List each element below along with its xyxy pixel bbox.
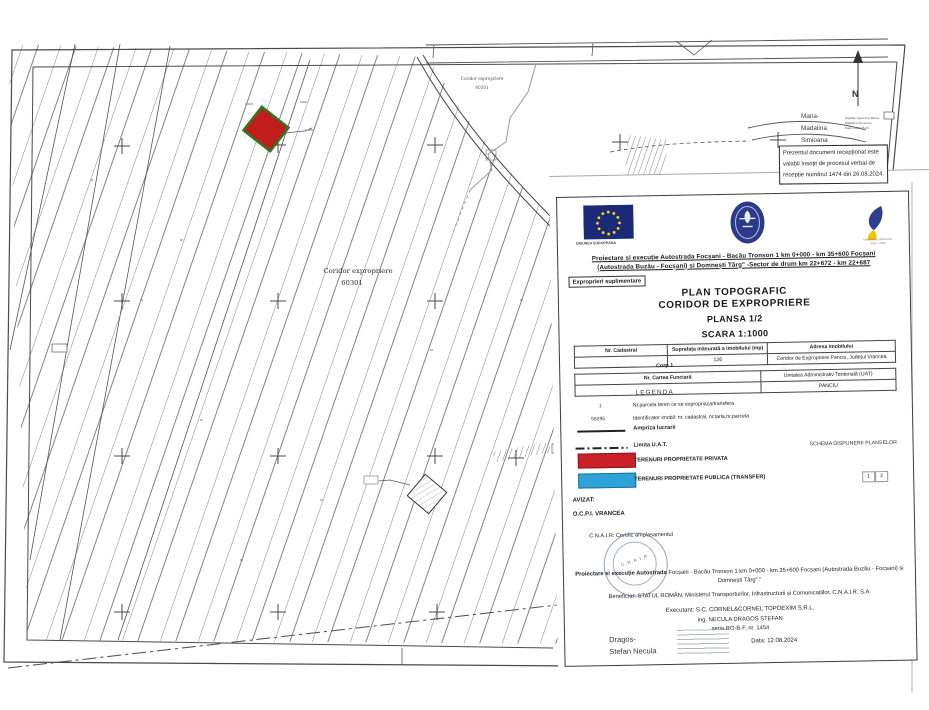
digital-signature-details: Digitally signed by Maria- Madalina Simi… <box>845 116 895 131</box>
cell-suprafata: 126 <box>668 354 768 367</box>
title-block: UNIUNEA EUROPEANA Instrumente Structural… <box>556 191 918 667</box>
corridor-label-line1: Coridor expropriere <box>323 267 392 275</box>
legend-uat-line <box>576 447 628 450</box>
legend-key-1: 1 <box>599 403 602 409</box>
legend-label-3: Ampriza lucrarii <box>633 425 675 432</box>
schema-cell-1: 1 <box>862 471 875 482</box>
approver-name-line2: Madalina <box>801 123 828 135</box>
program-caption: Instrumente Structurale 2014 - 2020 <box>854 238 902 246</box>
road-v-notch <box>676 40 712 55</box>
top-road-band <box>426 39 888 63</box>
avizat-org: O.C.P.I. VRANCEA <box>573 511 625 518</box>
cell-nr-cadastral <box>574 355 668 368</box>
cell-adresa: Coridor de Expropriere Panciu, Județul V… <box>768 351 896 364</box>
legend-public-swatch <box>578 473 636 489</box>
legend-private-swatch <box>578 453 636 469</box>
corridor-label-small-line1: Coridor expropriere <box>461 76 504 81</box>
north-label: N <box>852 89 859 99</box>
date-label: Data: 12.08.2024 <box>751 638 797 645</box>
legend-label-4: Limita U.A.T. <box>634 442 668 449</box>
carte-funciara-table: Nr. Cartea Funciară Unitatea Administrat… <box>574 368 896 397</box>
frame-tick-left <box>52 344 67 352</box>
legend-label-2: Identificator imobil: nr. cadastral, nr.… <box>633 414 749 422</box>
corridor-label-small-line2: 60301 <box>475 85 489 90</box>
legend-label-6: TERENURI PROPRIETATE PUBLICA (TRANSFER) <box>634 474 765 482</box>
legend-label-1: Nr.parcela teren ce se expropriaza/trans… <box>633 401 734 409</box>
eu-flag <box>583 205 636 244</box>
reception-line2: valabil însoțit de procesul verbal de <box>783 158 884 170</box>
scanned-plan-page: N Coridor expropriere 60301 Coridor expr… <box>0 0 929 710</box>
approver-name-line1: Maria- <box>801 111 828 123</box>
cadastral-table: Nr. Cadastral Suprafața măsurată a imobi… <box>574 340 896 369</box>
instrumente-structurale-logo <box>857 204 896 241</box>
legend-ampriza-line <box>577 430 625 433</box>
plansa-label: PLANSA 1/2 <box>559 311 910 327</box>
road-ticks <box>433 43 593 58</box>
executant-digital-signature <box>677 629 729 655</box>
schema-cell-2: 2 <box>875 471 888 482</box>
diamond-label-box <box>364 476 378 484</box>
eu-flag-caption: UNIUNEA EUROPEANA <box>576 241 616 246</box>
cnair-round-stamp: C.N.A.I.R. <box>603 532 668 597</box>
approver-signature: Maria- Madalina Simioana <box>801 111 828 147</box>
cell-uat: PANCIU <box>761 379 896 392</box>
reception-stamp-box: Prezentul document recepționat este vala… <box>779 144 888 184</box>
executant-signature: Dragos- Stefan Necula <box>609 633 657 658</box>
north-arrow: N <box>852 50 863 106</box>
corp-label: Corp 1 <box>656 363 673 369</box>
legend-title: LEGENDA <box>636 389 674 397</box>
corridor-label-line2: 60301 <box>341 279 363 287</box>
schema-cells: 1 2 <box>862 471 888 482</box>
legend-label-5: TERENURI PROPRIETATE PRIVATA <box>634 456 728 464</box>
exproprieri-box: Exproprieri suplimentare <box>568 275 645 287</box>
legend-key-2: 58295 <box>591 416 605 422</box>
gov-seal <box>725 198 770 247</box>
avizat-label: AVIZAT: <box>573 497 595 503</box>
schema-title: SCHEMA DISPUNERII PLANSELOR <box>810 440 898 448</box>
reception-line3: recepție numărul 1474 din 26.08.2024. <box>783 169 884 181</box>
